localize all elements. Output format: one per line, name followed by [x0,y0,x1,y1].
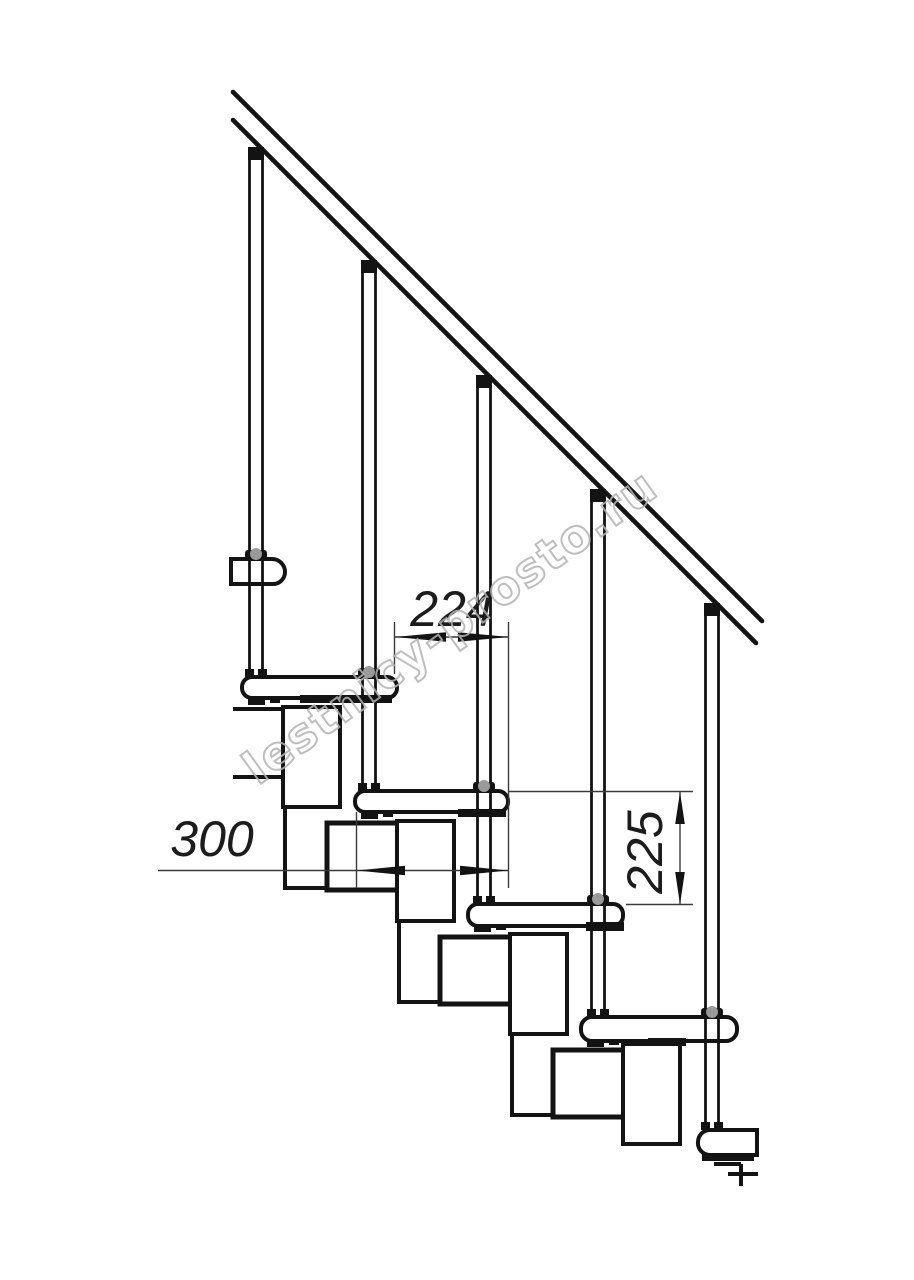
baluster-foot [371,783,380,791]
baluster-foot [245,669,254,677]
handrail-upper-line [233,92,762,621]
module-link-1 [285,807,327,888]
tread-2 [355,791,508,812]
cutoff-step-lines [714,1164,758,1186]
arrowhead-right [460,866,509,876]
dim-label-300: 300 [170,811,254,867]
baluster-foot [358,783,367,791]
module-box-b2 [440,937,517,1004]
arrowhead-up [675,792,685,824]
baluster-1 [245,147,267,677]
baluster-foot [701,1122,710,1130]
staircase-drawing: 224 300 225 lestnicy-prosto.ru [0,0,914,1280]
baluster-foot [714,1122,723,1130]
module-box-b3 [553,1050,630,1117]
collar-ball [706,1006,718,1018]
tread-4 [581,1017,737,1041]
baluster-foot [486,896,495,904]
dimension-riser-225: 225 [509,792,693,905]
module-box-a4 [623,1044,680,1144]
baluster-5 [701,603,723,1130]
watermark: lestnicy-prosto.ru [233,458,668,795]
collar-ball [250,548,262,560]
module-box-b1 [327,823,404,890]
collar-ball [478,780,490,792]
collar-ball [592,893,604,905]
stringer-modules [233,707,758,1186]
module-box-a3 [510,934,567,1034]
dim-label-225: 225 [617,810,673,895]
baluster-foot [600,1009,609,1017]
tread-5 [698,1130,757,1155]
baluster-foot [473,896,482,904]
module-link-3 [512,1034,553,1115]
arrowhead-down [675,872,685,905]
module-link-2 [399,921,440,1002]
drawing-page: 224 300 225 lestnicy-prosto.ru [0,0,914,1280]
tread-0 [231,559,285,584]
baluster-foot [258,669,267,677]
baluster-foot [587,1009,596,1017]
baluster-4 [587,489,609,1017]
